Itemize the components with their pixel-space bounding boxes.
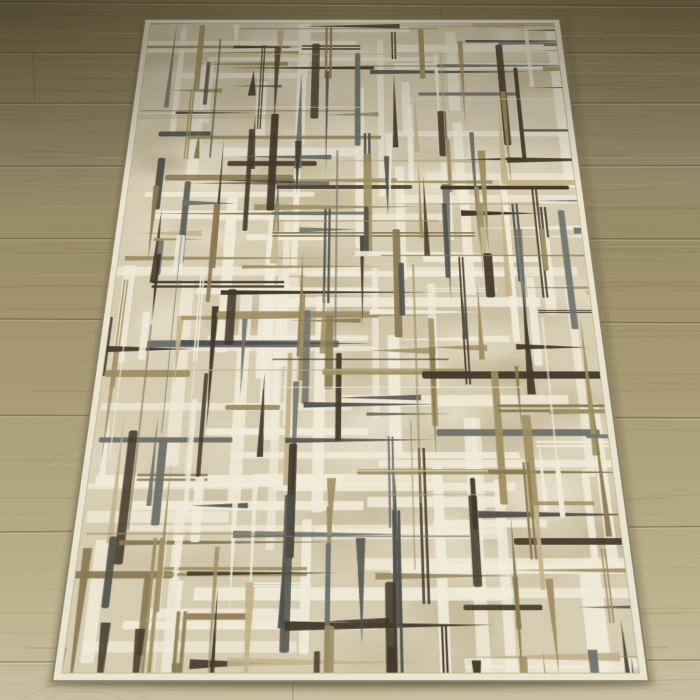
scene (0, 0, 700, 700)
area-rug (51, 19, 650, 682)
rug-pattern (51, 19, 650, 682)
